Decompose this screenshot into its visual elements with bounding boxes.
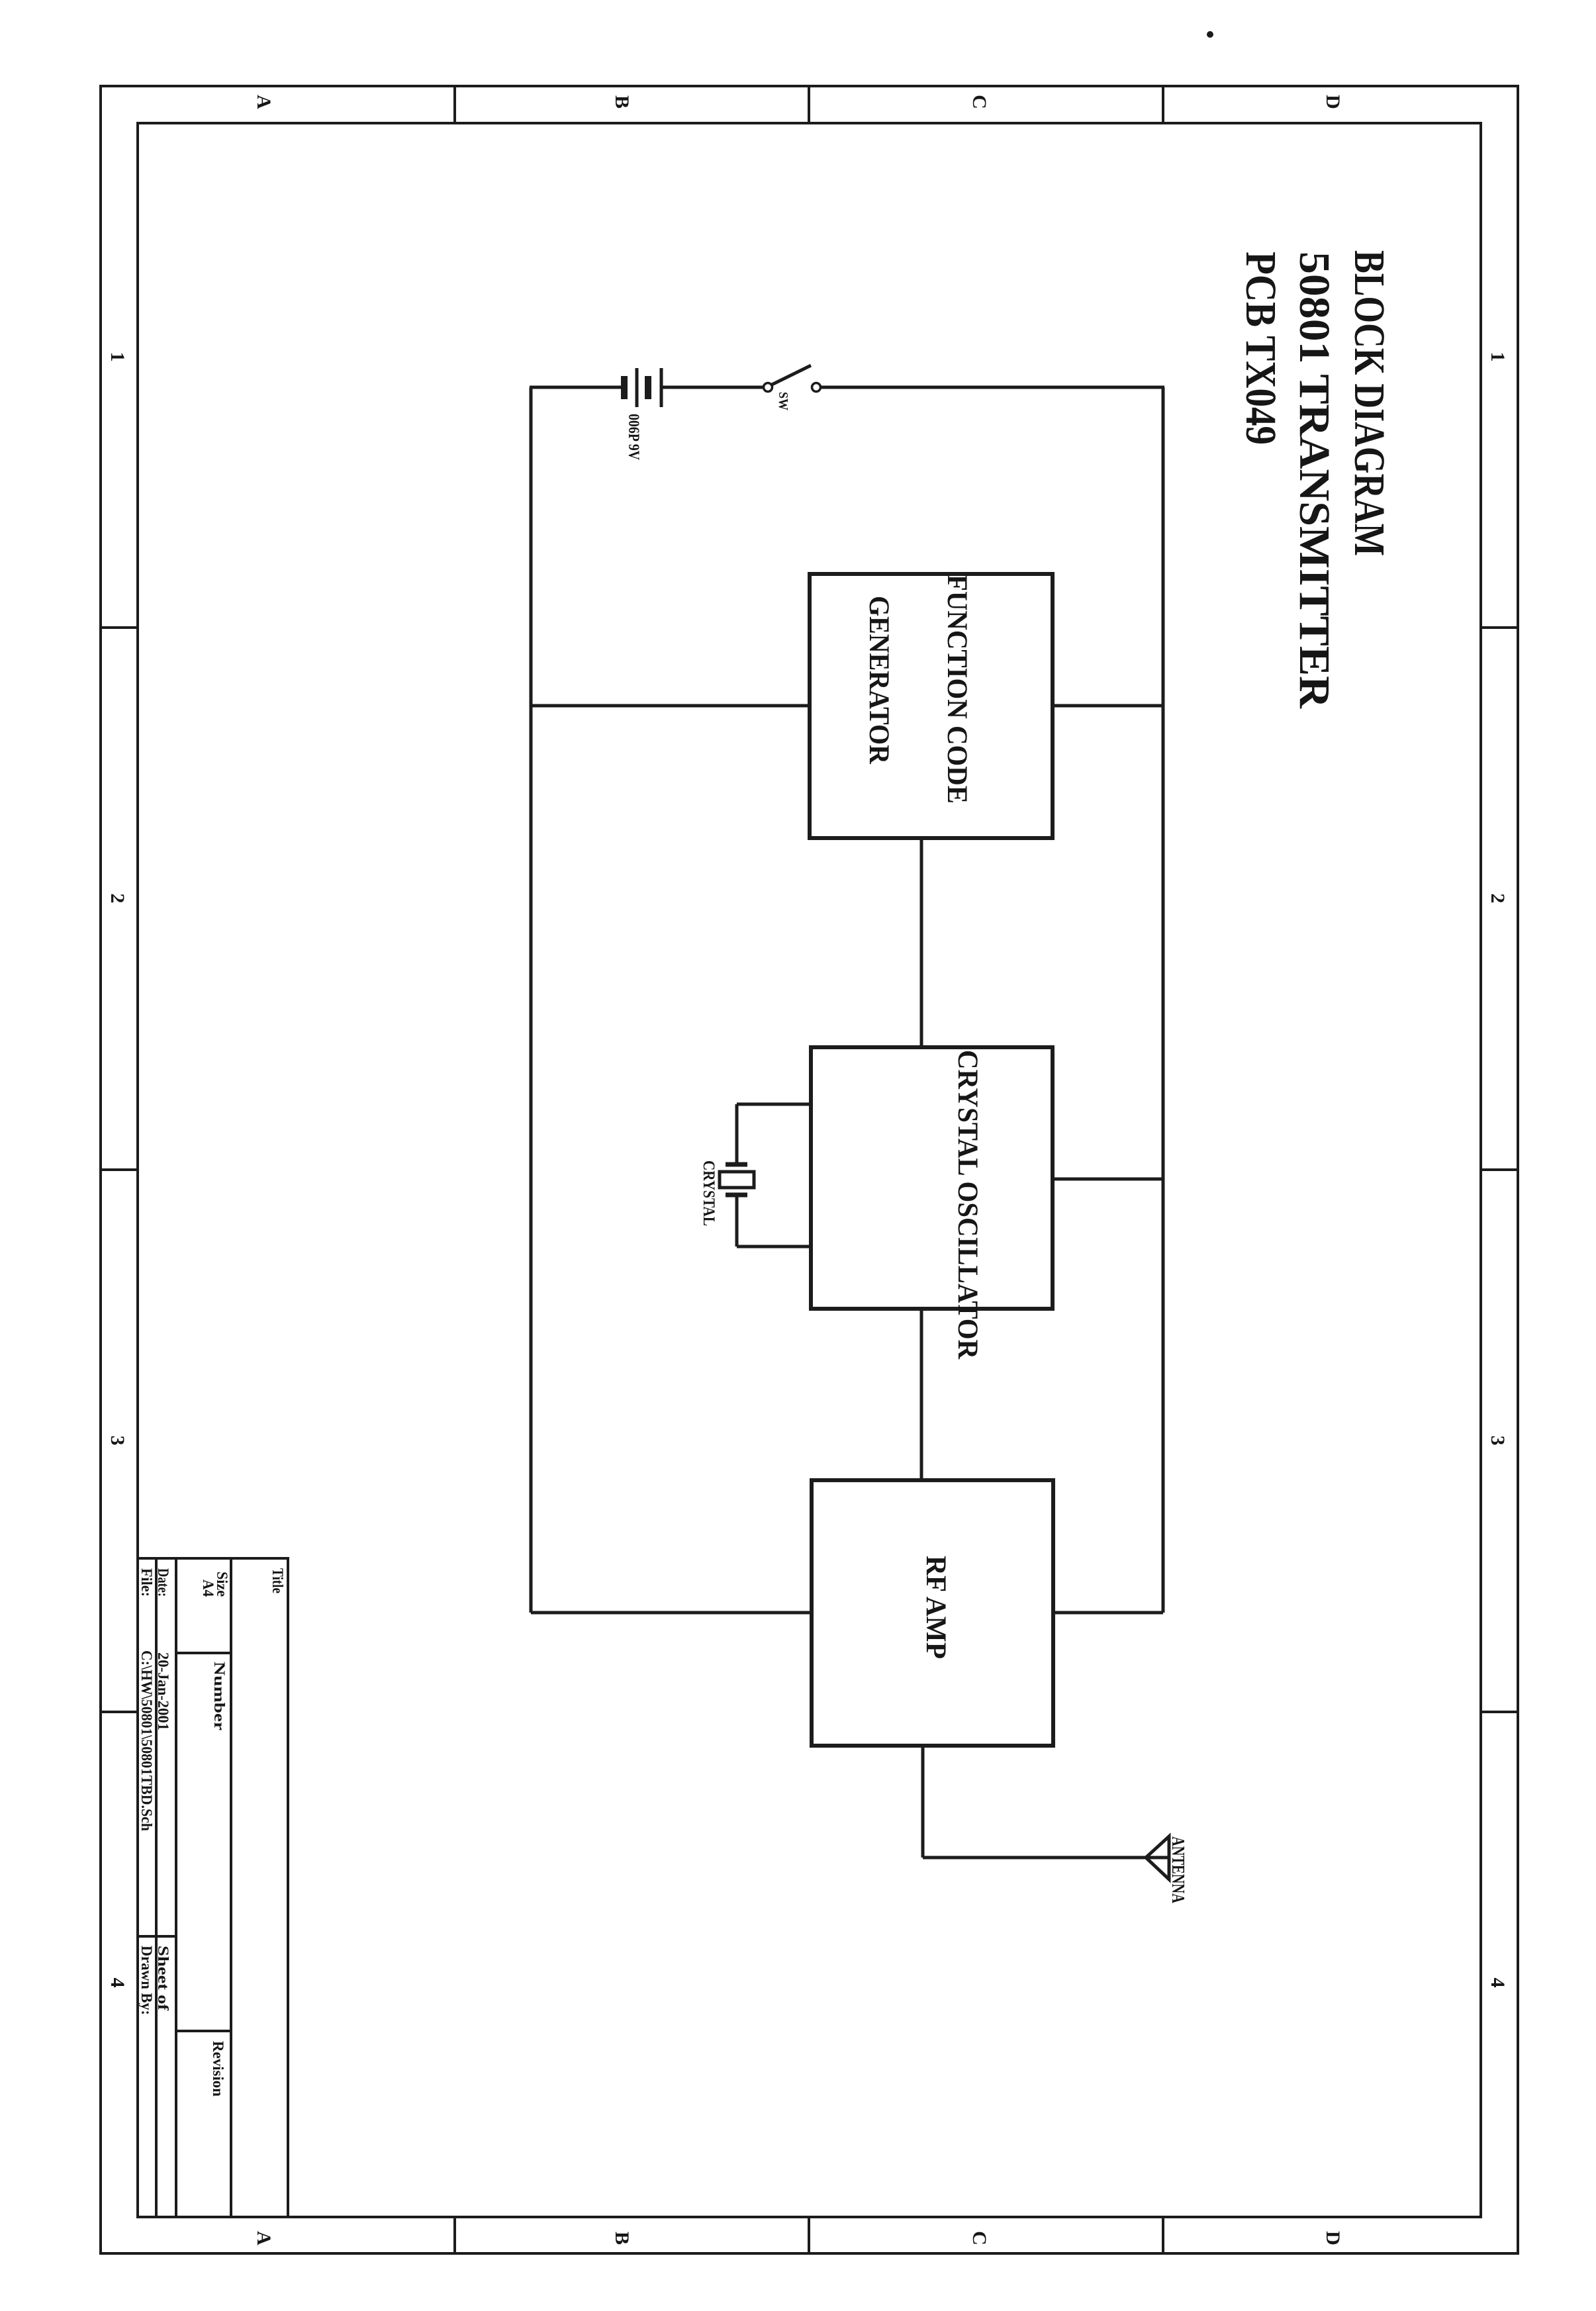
svg-text:D: D xyxy=(1322,2231,1344,2245)
svg-text:50801 TRANSMITTER: 50801 TRANSMITTER xyxy=(1290,252,1338,709)
svg-text:CRYSTAL OSCILLATOR: CRYSTAL OSCILLATOR xyxy=(952,1050,983,1360)
svg-text:BLOCK DIAGRAM: BLOCK DIAGRAM xyxy=(1345,250,1393,556)
svg-text:PCB TX049: PCB TX049 xyxy=(1237,252,1285,445)
svg-text:A: A xyxy=(253,2231,275,2245)
svg-text:D: D xyxy=(1322,95,1344,109)
svg-text:3: 3 xyxy=(107,1436,128,1446)
svg-text:006P 9V: 006P 9V xyxy=(626,414,642,460)
svg-text:GENERATOR: GENERATOR xyxy=(863,596,894,765)
svg-text:Sheet of: Sheet of xyxy=(155,1946,171,2010)
svg-text:C:\HW\50801\50801TBD.Sch: C:\HW\50801\50801TBD.Sch xyxy=(138,1650,155,1831)
svg-text:RF AMP: RF AMP xyxy=(920,1556,951,1659)
svg-text:1: 1 xyxy=(107,352,128,362)
svg-text:B: B xyxy=(611,95,633,109)
svg-text:C: C xyxy=(968,2231,990,2245)
svg-text:4: 4 xyxy=(107,1978,128,1988)
svg-text:Drawn By:: Drawn By: xyxy=(138,1946,155,2015)
svg-text:C: C xyxy=(968,95,990,109)
svg-text:2: 2 xyxy=(107,894,128,904)
svg-text:FUNCTION CODE: FUNCTION CODE xyxy=(941,575,972,804)
svg-text:A4: A4 xyxy=(200,1580,216,1597)
svg-text:1: 1 xyxy=(1487,352,1509,362)
svg-text:File:: File: xyxy=(138,1568,155,1597)
svg-text:B: B xyxy=(611,2232,633,2245)
svg-text:SW: SW xyxy=(776,392,790,410)
svg-text:20-Jan-2001: 20-Jan-2001 xyxy=(155,1652,171,1730)
svg-text:2: 2 xyxy=(1487,894,1509,904)
svg-text:4: 4 xyxy=(1487,1978,1509,1988)
svg-text:Title: Title xyxy=(269,1568,286,1593)
svg-text:Revision: Revision xyxy=(210,2041,226,2097)
svg-text:CRYSTAL: CRYSTAL xyxy=(700,1160,718,1226)
svg-text:ANTENNA: ANTENNA xyxy=(1168,1836,1188,1903)
svg-text:A: A xyxy=(253,95,275,109)
svg-text:Number: Number xyxy=(211,1662,228,1730)
svg-text:3: 3 xyxy=(1487,1436,1509,1446)
svg-text:Date:: Date: xyxy=(155,1568,171,1597)
